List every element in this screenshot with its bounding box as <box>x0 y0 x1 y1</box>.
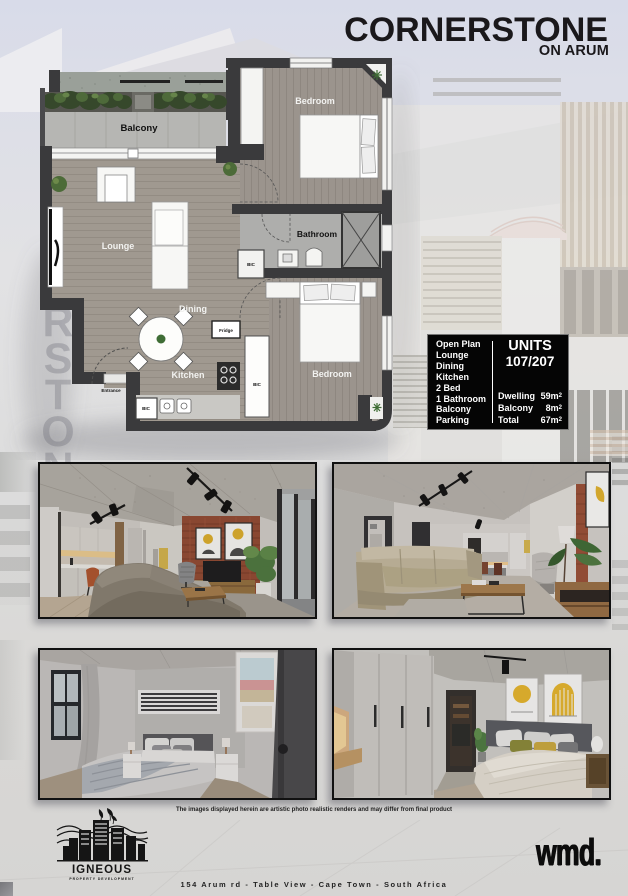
svg-text:Bedroom: Bedroom <box>312 369 352 379</box>
svg-text:BIC: BIC <box>142 406 151 411</box>
svg-text:Lounge: Lounge <box>102 241 135 251</box>
svg-text:Dining: Dining <box>179 304 207 314</box>
svg-text:Bedroom: Bedroom <box>295 96 335 106</box>
svg-text:IGNEOUS: IGNEOUS <box>72 864 132 876</box>
svg-text:Balcony: Balcony <box>121 123 159 134</box>
svg-text:BIC: BIC <box>253 382 262 387</box>
svg-text:Bathroom: Bathroom <box>297 229 338 239</box>
svg-text:Entrance: Entrance <box>101 388 121 393</box>
svg-text:BIC: BIC <box>247 262 256 267</box>
svg-text:Fridge: Fridge <box>219 328 233 333</box>
svg-text:Kitchen: Kitchen <box>171 370 204 380</box>
